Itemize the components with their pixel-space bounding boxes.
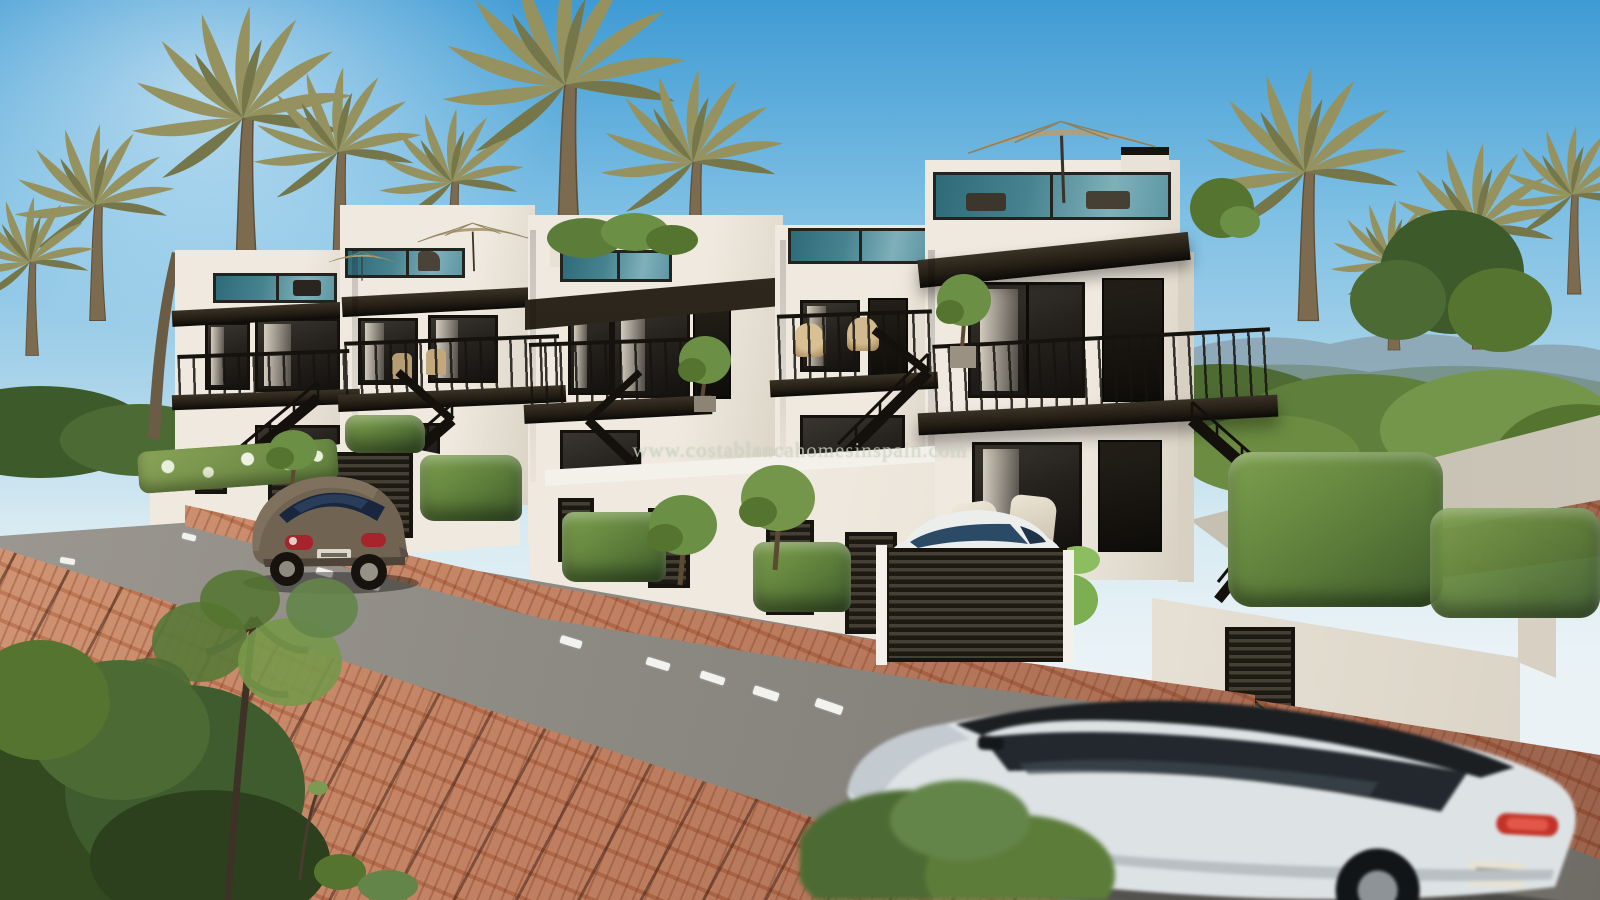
foreground-bush-blur (800, 760, 1130, 900)
architectural-render-scene: www.costablancahomesinspain.com (0, 0, 1600, 900)
